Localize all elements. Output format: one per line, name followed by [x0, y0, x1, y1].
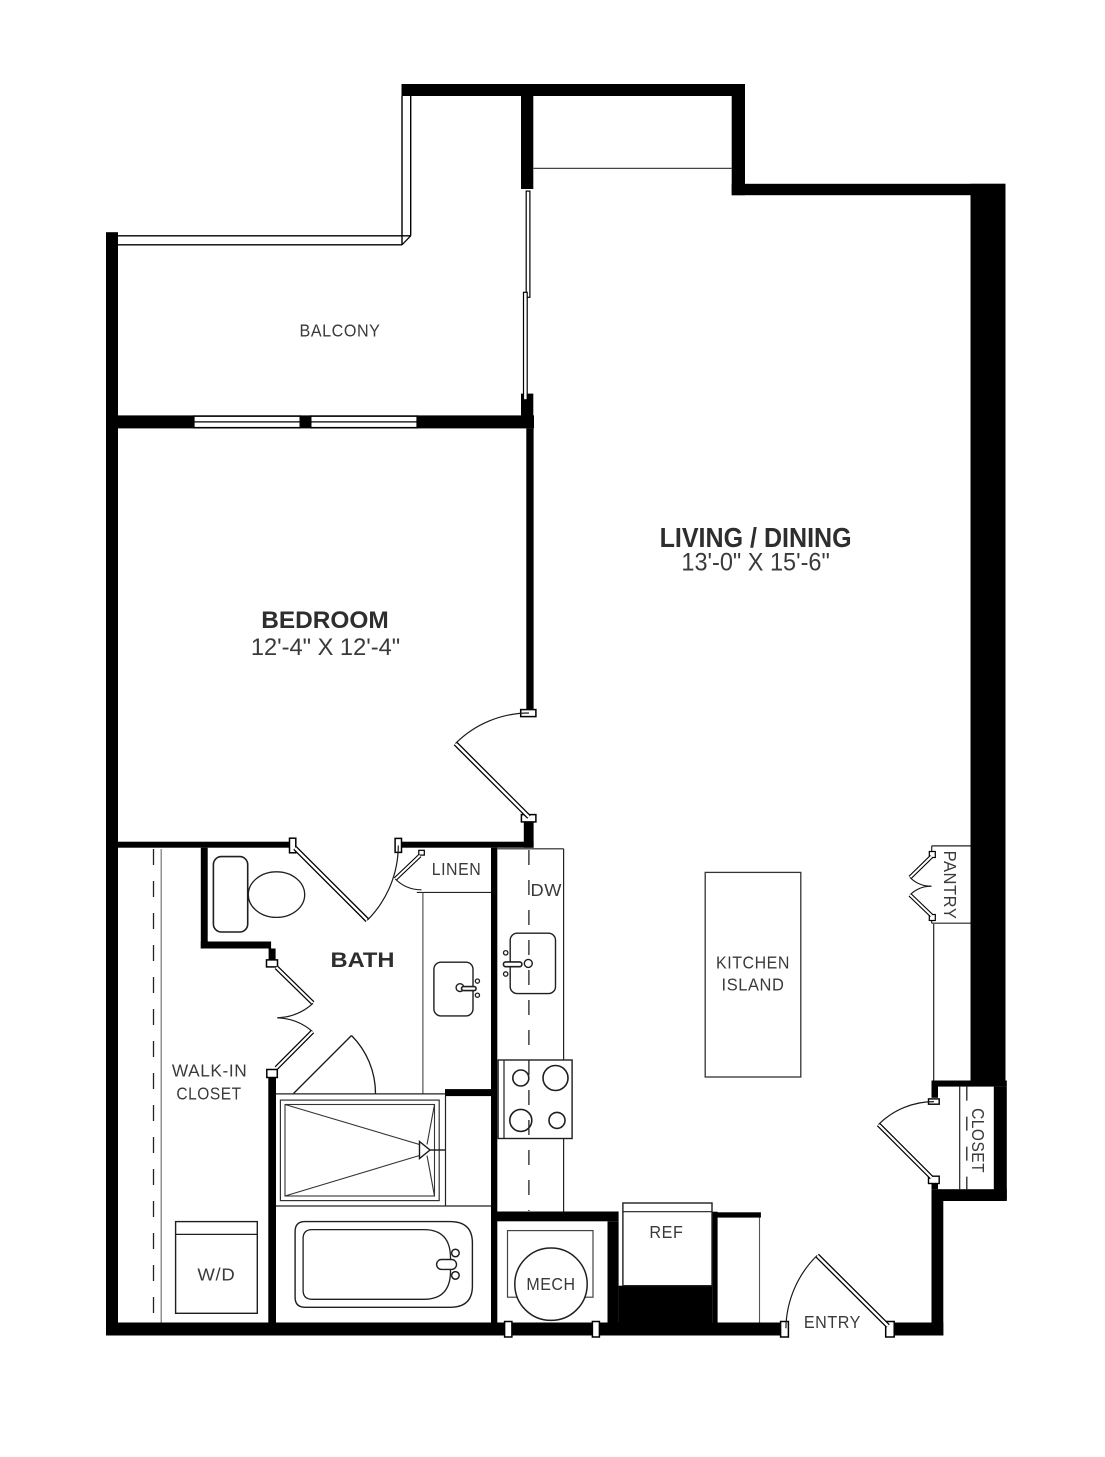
svg-text:ENTRY: ENTRY	[804, 1312, 861, 1332]
svg-text:DW: DW	[531, 880, 563, 900]
svg-text:BALCONY: BALCONY	[300, 321, 381, 341]
svg-text:CLOSET: CLOSET	[176, 1083, 241, 1103]
svg-text:WALK-IN: WALK-IN	[172, 1061, 248, 1081]
svg-text:PANTRY: PANTRY	[940, 851, 960, 920]
svg-text:CLOSET: CLOSET	[968, 1108, 988, 1173]
svg-text:12'-4" X 12'-4": 12'-4" X 12'-4"	[251, 634, 400, 661]
svg-text:REF: REF	[649, 1222, 683, 1242]
svg-text:BEDROOM: BEDROOM	[261, 607, 389, 634]
svg-text:MECH: MECH	[526, 1274, 575, 1294]
svg-text:W/D: W/D	[197, 1265, 235, 1285]
svg-text:LINEN: LINEN	[432, 859, 482, 879]
svg-text:KITCHEN: KITCHEN	[716, 953, 790, 973]
svg-text:13'-0" X 15'-6": 13'-0" X 15'-6"	[681, 549, 829, 577]
svg-text:ISLAND: ISLAND	[722, 975, 785, 995]
svg-text:BATH: BATH	[331, 948, 395, 972]
